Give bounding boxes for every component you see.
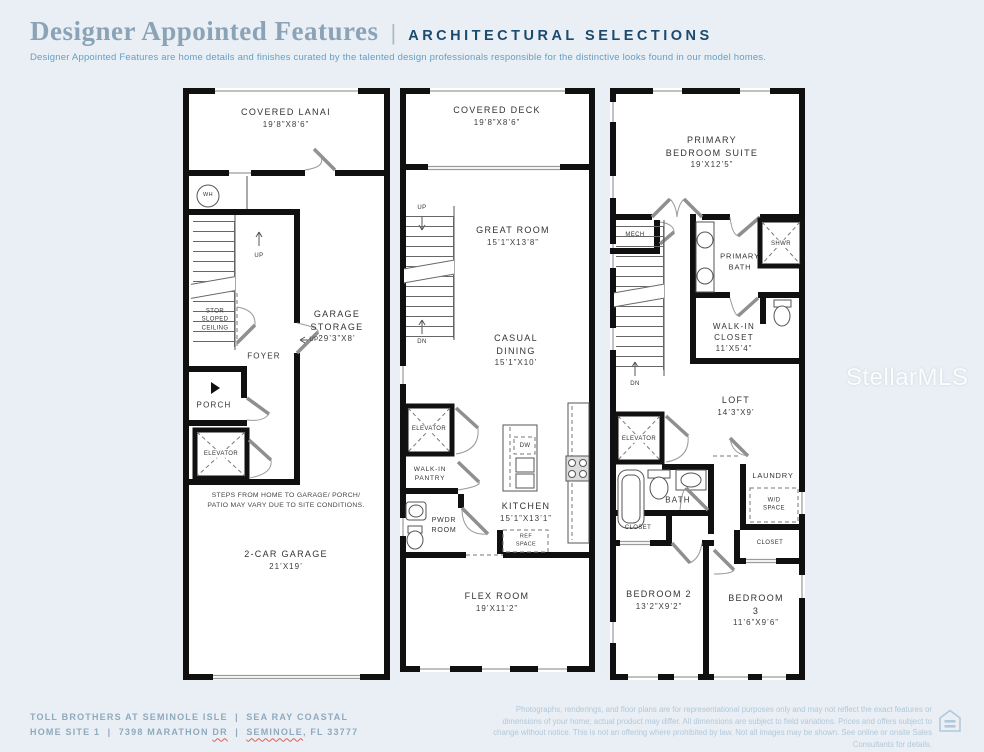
bath-fixtures	[618, 470, 708, 528]
floor-plan-first-floor: COVERED LANAI 19’8”X8’6” WH UP STOR SLOP…	[183, 88, 390, 680]
bedroom3-door	[714, 550, 734, 574]
kitchen-counter-cooktop	[566, 403, 589, 543]
lanai-door	[305, 149, 335, 170]
page-title: Designer Appointed Features	[30, 16, 379, 47]
deck-slider-door	[428, 167, 560, 170]
room-label-bath: BATH	[665, 494, 691, 505]
room-label-covered-deck: COVERED DECK 19’8”X8’6”	[453, 104, 541, 128]
room-label-bedroom3: BEDROOM 3 11’6”X9’6”	[728, 592, 784, 628]
label-water-heater: WH	[203, 192, 213, 200]
listing-info: TOLL BROTHERS AT SEMINOLE ISLE | SEA RAY…	[30, 710, 358, 741]
label-stairs-down: DN	[417, 338, 426, 346]
label-stairs-up: UP	[417, 204, 426, 212]
room-label-loft: LOFT 14’3”X9’	[717, 394, 754, 418]
label-elevator: ELEVATOR	[620, 435, 658, 443]
garage-door	[213, 676, 360, 679]
label-stairs-down: DN	[630, 380, 639, 388]
page-subtitle: ARCHITECTURAL SELECTIONS	[408, 28, 712, 44]
label-ref-space: REF SPACE	[516, 533, 536, 548]
pantry-door	[458, 462, 479, 490]
closet-left-door	[620, 542, 650, 545]
closet-right-door	[746, 560, 776, 563]
room-label-kitchen: KITCHEN 15’1”X13’1”	[500, 500, 552, 524]
label-elevator: ELEVATOR	[410, 425, 448, 433]
label-garage-storage-up: UP	[309, 336, 318, 344]
kitchen-island	[503, 425, 537, 491]
label-mech: MECH	[625, 231, 644, 239]
listing-community-line: TOLL BROTHERS AT SEMINOLE ISLE | SEA RAY…	[30, 710, 358, 725]
disclaimer-text: Photographs, renderings, and floor plans…	[480, 704, 932, 751]
room-label-primary-bath: PRIMARY BATH	[720, 252, 760, 273]
closet-door	[730, 298, 758, 316]
toilet-icon	[774, 300, 791, 326]
room-label-garage: 2-CAR GARAGE 21’X19’	[244, 548, 328, 572]
room-label-laundry: LAUNDRY	[752, 471, 793, 482]
label-shower: SHWR	[769, 240, 793, 248]
room-label-casual-dining: CASUAL DINING 15’1”X10’	[477, 332, 556, 368]
room-label-foyer: FOYER	[247, 350, 281, 361]
label-stairs-up: UP	[254, 252, 263, 260]
room-label-porch: PORCH	[197, 399, 232, 410]
room-label-walkin-closet: WALK-IN CLOSET 11’X5’4”	[713, 321, 755, 355]
equal-housing-icon	[938, 708, 962, 739]
first-floor-drawing	[183, 88, 390, 680]
label-storage-sloped-ceiling: STOR SLOPED CEILING	[202, 307, 229, 332]
listing-address-line: HOME SITE 1 | 7398 MARATHON DR | SEMINOL…	[30, 725, 358, 740]
room-label-covered-lanai: COVERED LANAI 19’8”X8’6”	[241, 106, 331, 130]
page-header: Designer Appointed Features | ARCHITECTU…	[30, 16, 766, 63]
header-description: Designer Appointed Features are home det…	[30, 52, 766, 63]
room-label-primary-suite: PRIMARY BEDROOM SUITE 19’X12’5”	[666, 134, 758, 170]
stellar-mls-watermark: StellarMLS	[846, 364, 968, 392]
walls	[400, 88, 595, 672]
room-label-bedroom2: BEDROOM 2 13’2”X9’2”	[626, 588, 692, 612]
label-dishwasher: DW	[520, 442, 531, 450]
room-label-great-room: GREAT ROOM 15’1”X13’8”	[476, 224, 550, 248]
label-elevator: ELEVATOR	[202, 450, 240, 458]
label-closet-right: CLOSET	[757, 539, 783, 547]
up-arrow-icon	[256, 232, 262, 246]
floor-plan-third-floor: PRIMARY BEDROOM SUITE 19’X12’5” MECH PRI…	[610, 88, 805, 680]
double-vanity	[696, 222, 714, 292]
title-divider: |	[391, 20, 397, 46]
walls	[183, 88, 390, 680]
label-wd-space: W/D SPACE	[763, 497, 785, 514]
bedroom2-door	[672, 543, 702, 563]
room-label-flex-room: FLEX ROOM 19’X11’2”	[465, 590, 530, 614]
primary-bath-door	[730, 217, 760, 236]
site-conditions-note: STEPS FROM HOME TO GARAGE/ PORCH/ PATIO …	[186, 491, 386, 511]
room-label-powder-room: PWDR ROOM	[432, 516, 457, 536]
floor-plan-second-floor: COVERED DECK 19’8”X8’6” UP GREAT ROOM 15…	[400, 88, 595, 672]
label-closet-left: CLOSET	[625, 524, 651, 532]
storage-door	[237, 293, 255, 346]
second-floor-drawing	[400, 88, 595, 672]
label-walkin-pantry: WALK-IN PANTRY	[414, 465, 446, 483]
laundry-door	[713, 438, 748, 456]
